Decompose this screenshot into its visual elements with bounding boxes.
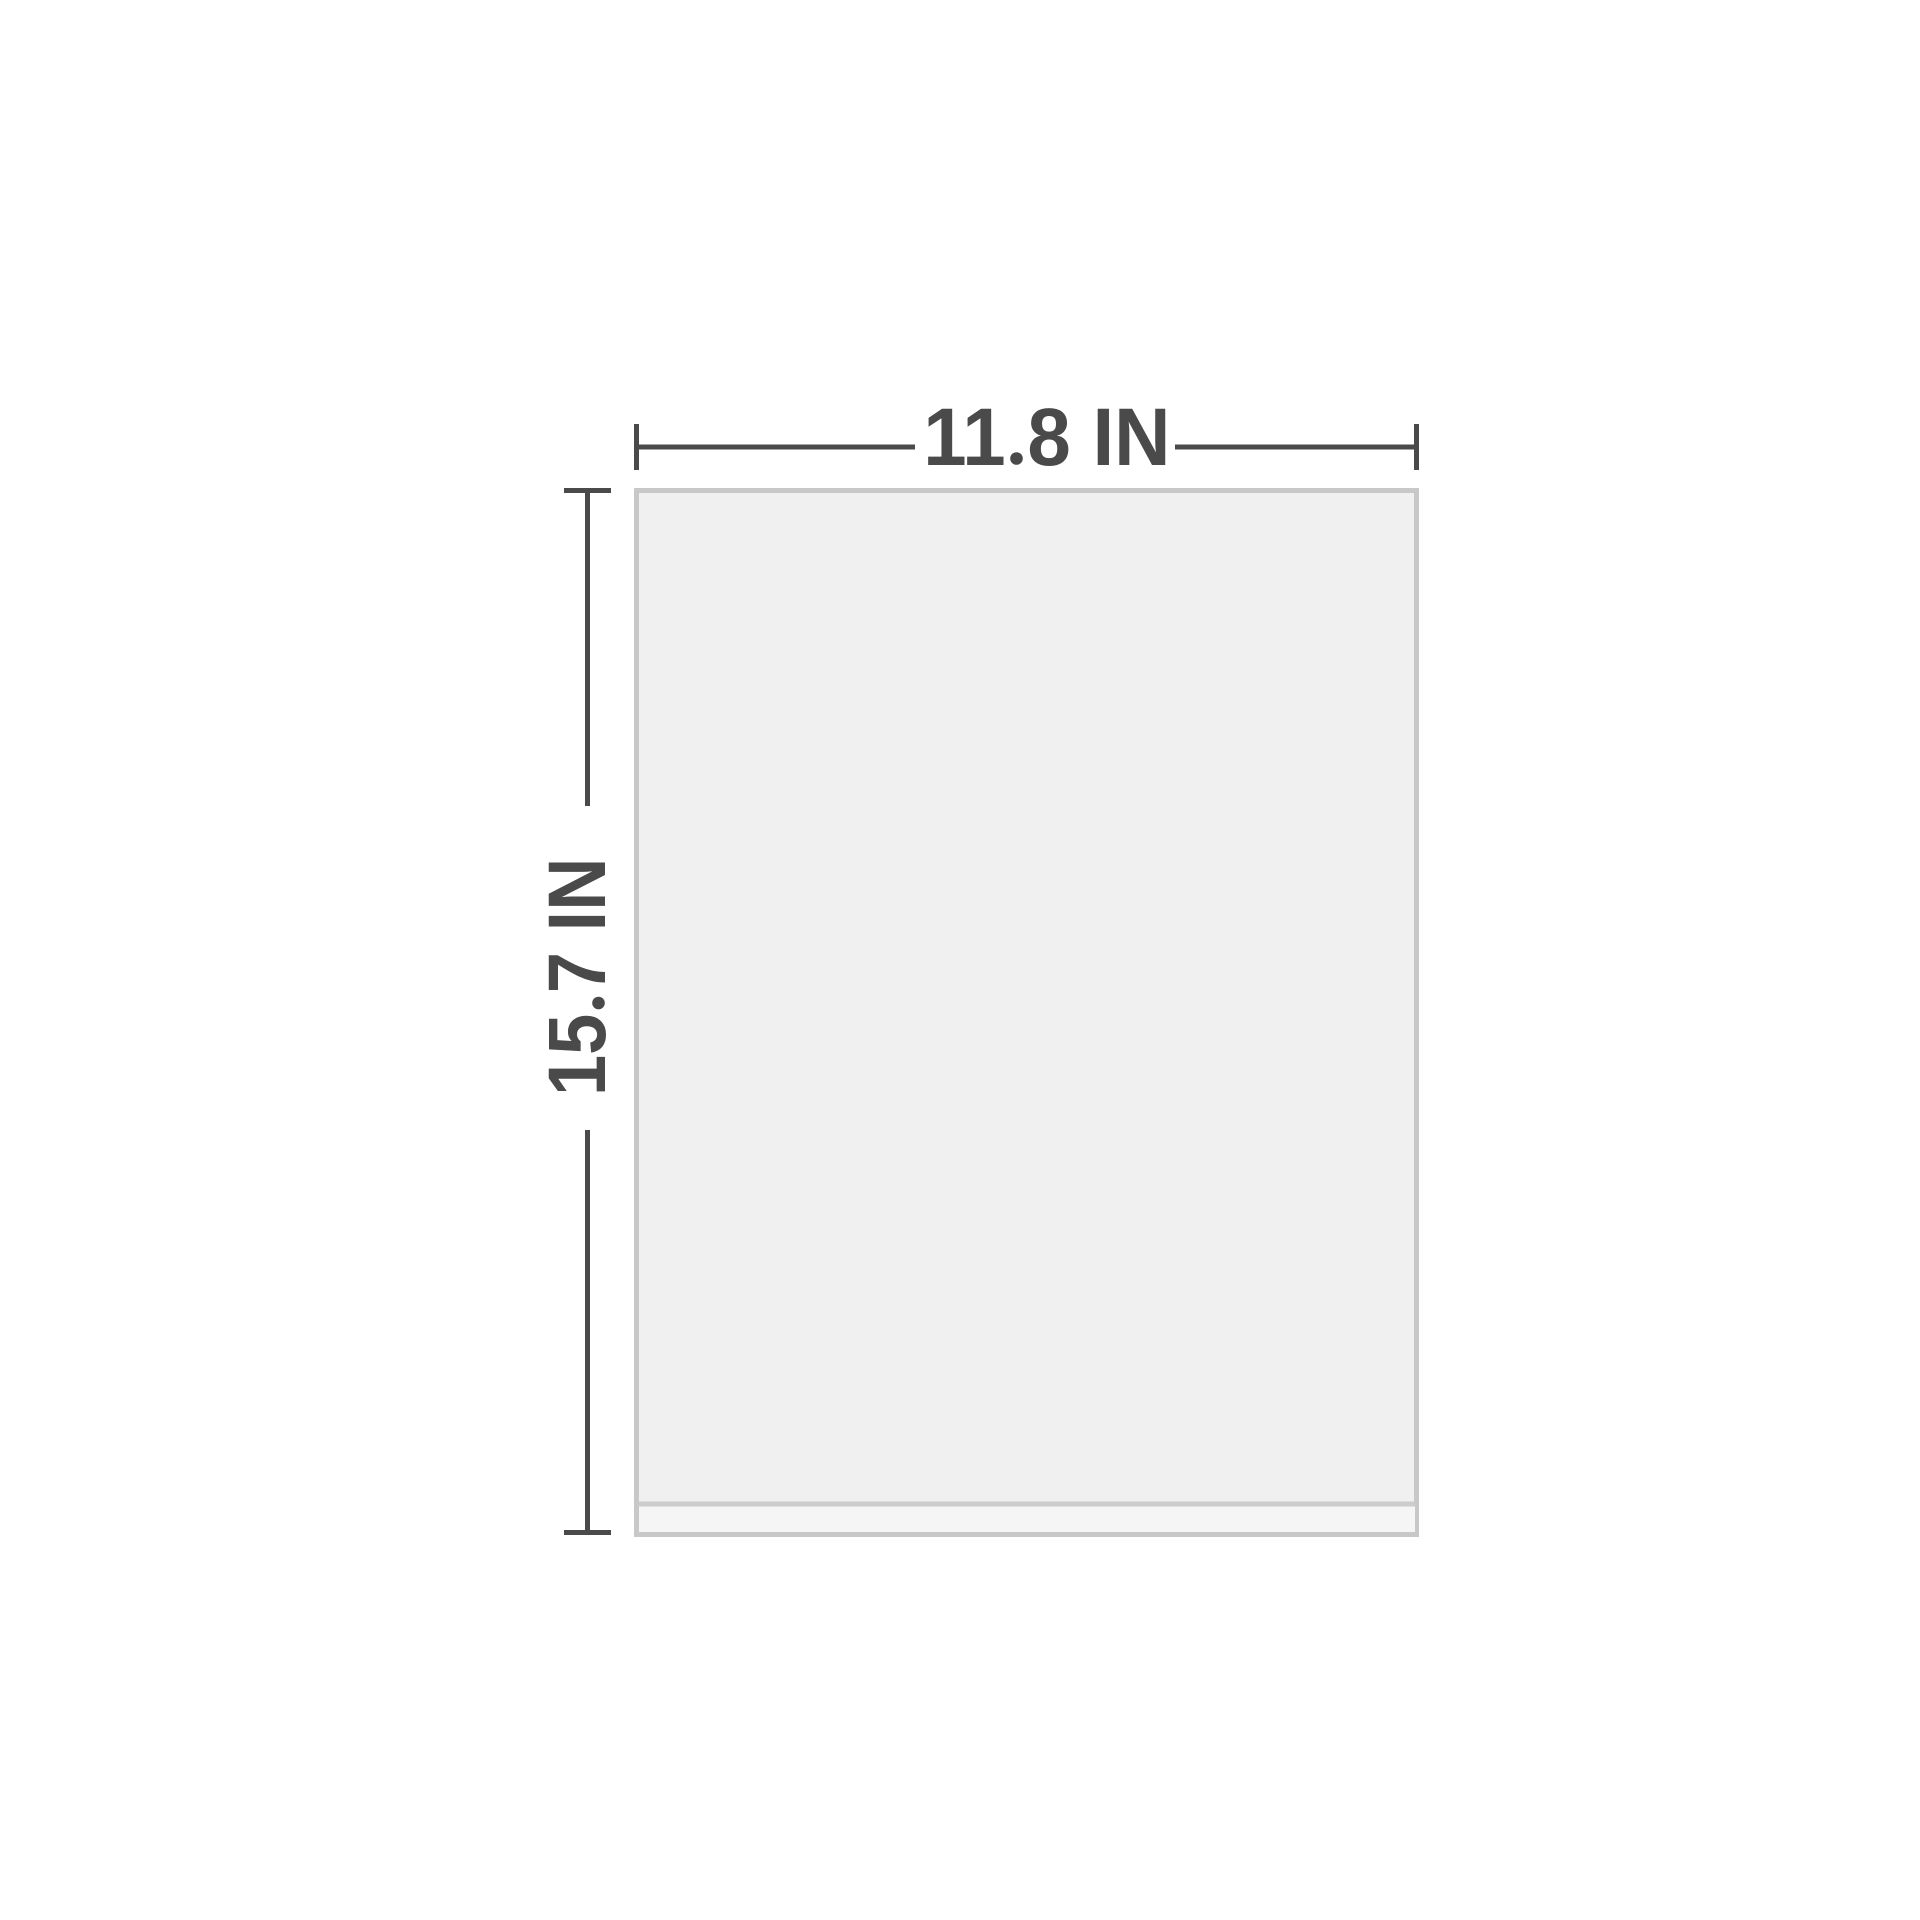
- svg-text:15.7 IN: 15.7 IN: [532, 858, 623, 1097]
- svg-text:11.8 IN: 11.8 IN: [923, 392, 1170, 483]
